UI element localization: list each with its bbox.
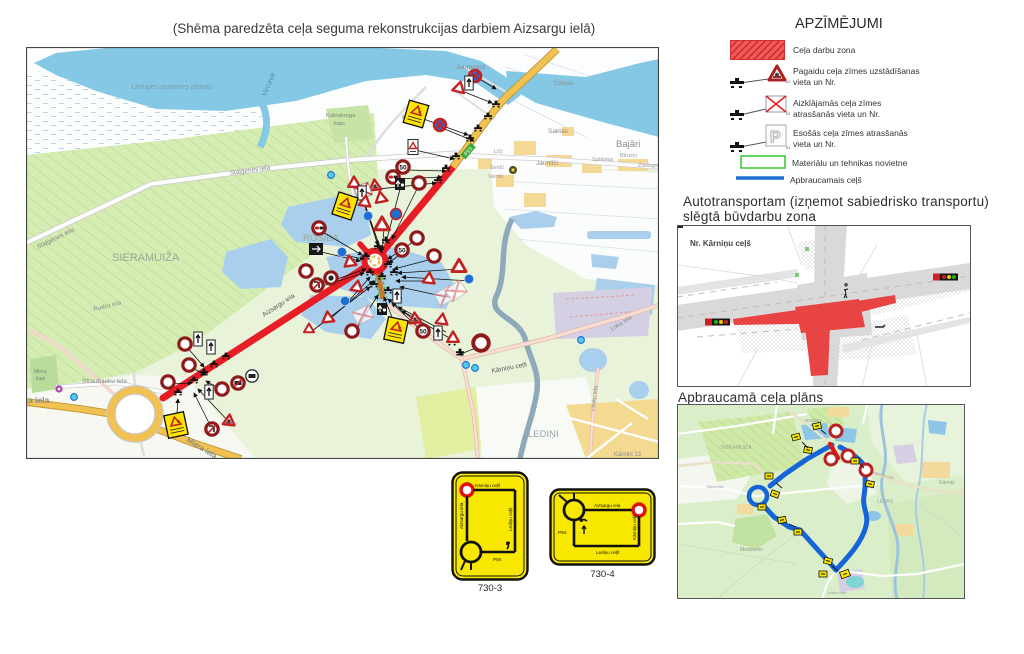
svg-text:532: 532 (786, 145, 790, 150)
svg-text:P94: P94 (558, 530, 567, 535)
svg-text:Kalnakroga: Kalnakroga (326, 113, 356, 119)
svg-text:a iela: a iela (28, 395, 50, 405)
svg-text:115: 115 (785, 79, 790, 84)
svg-text:Bērziņi: Bērziņi (620, 153, 637, 159)
svg-text:Strautnieku iela: Strautnieku iela (82, 378, 127, 385)
svg-text:LEDIŅI: LEDIŅI (877, 499, 893, 505)
svg-text:Nr. Kārniņu ceļš: Nr. Kārniņu ceļš (690, 239, 751, 248)
svg-text:Aizsargu iela: Aizsargu iela (594, 503, 621, 508)
svg-text:kapi: kapi (36, 376, 45, 382)
svg-text:Miera iela: Miera iela (707, 485, 724, 489)
svg-text:Kārniņi: Kārniņi (939, 480, 955, 486)
svg-text:Jaunkrasti: Jaunkrasti (456, 64, 486, 71)
svg-text:Vecāti: Vecāti (488, 174, 503, 180)
svg-text:SIERAMUIŽA: SIERAMUIŽA (112, 251, 180, 264)
svg-text:537: 537 (786, 111, 790, 116)
svg-text:Spīdolas: Spīdolas (592, 157, 614, 163)
svg-text:LEDIŅI: LEDIŅI (528, 429, 559, 440)
svg-text:Medziems: Medziems (740, 547, 763, 553)
svg-text:P: P (770, 129, 781, 146)
svg-text:kapi: kapi (334, 121, 345, 127)
svg-text:Ūziņas: Ūziņas (554, 79, 575, 87)
svg-text:Jaunlīči: Jaunlīči (536, 160, 558, 167)
svg-text:Līči: Līči (494, 149, 503, 155)
svg-text:ROSĪBA: ROSĪBA (805, 417, 823, 423)
svg-text:Lediņu ceļš: Lediņu ceļš (596, 550, 620, 555)
svg-text:Senči: Senči (490, 165, 504, 171)
svg-text:Ziedugas: Ziedugas (638, 163, 659, 169)
svg-text:P94: P94 (493, 557, 502, 562)
svg-text:SIERAMUIŽA: SIERAMUIŽA (721, 443, 752, 451)
svg-text:Miera: Miera (34, 369, 47, 375)
svg-text:Kārniņu ceļš: Kārniņu ceļš (632, 514, 637, 540)
svg-text:Kārniņi 13: Kārniņi 13 (614, 452, 642, 458)
svg-text:Saktas: Saktas (548, 128, 569, 135)
svg-text:Lediņu ceļš: Lediņu ceļš (827, 591, 846, 595)
svg-text:Lielupes palienes pļavas: Lielupes palienes pļavas (131, 82, 213, 91)
svg-text:Bajāri: Bajāri (616, 139, 640, 150)
svg-text:Kārniņu ceļš: Kārniņu ceļš (475, 483, 501, 488)
svg-text:Aizsargu iela: Aizsargu iela (459, 502, 464, 529)
svg-text:Lediņu ceļš: Lediņu ceļš (508, 507, 513, 531)
